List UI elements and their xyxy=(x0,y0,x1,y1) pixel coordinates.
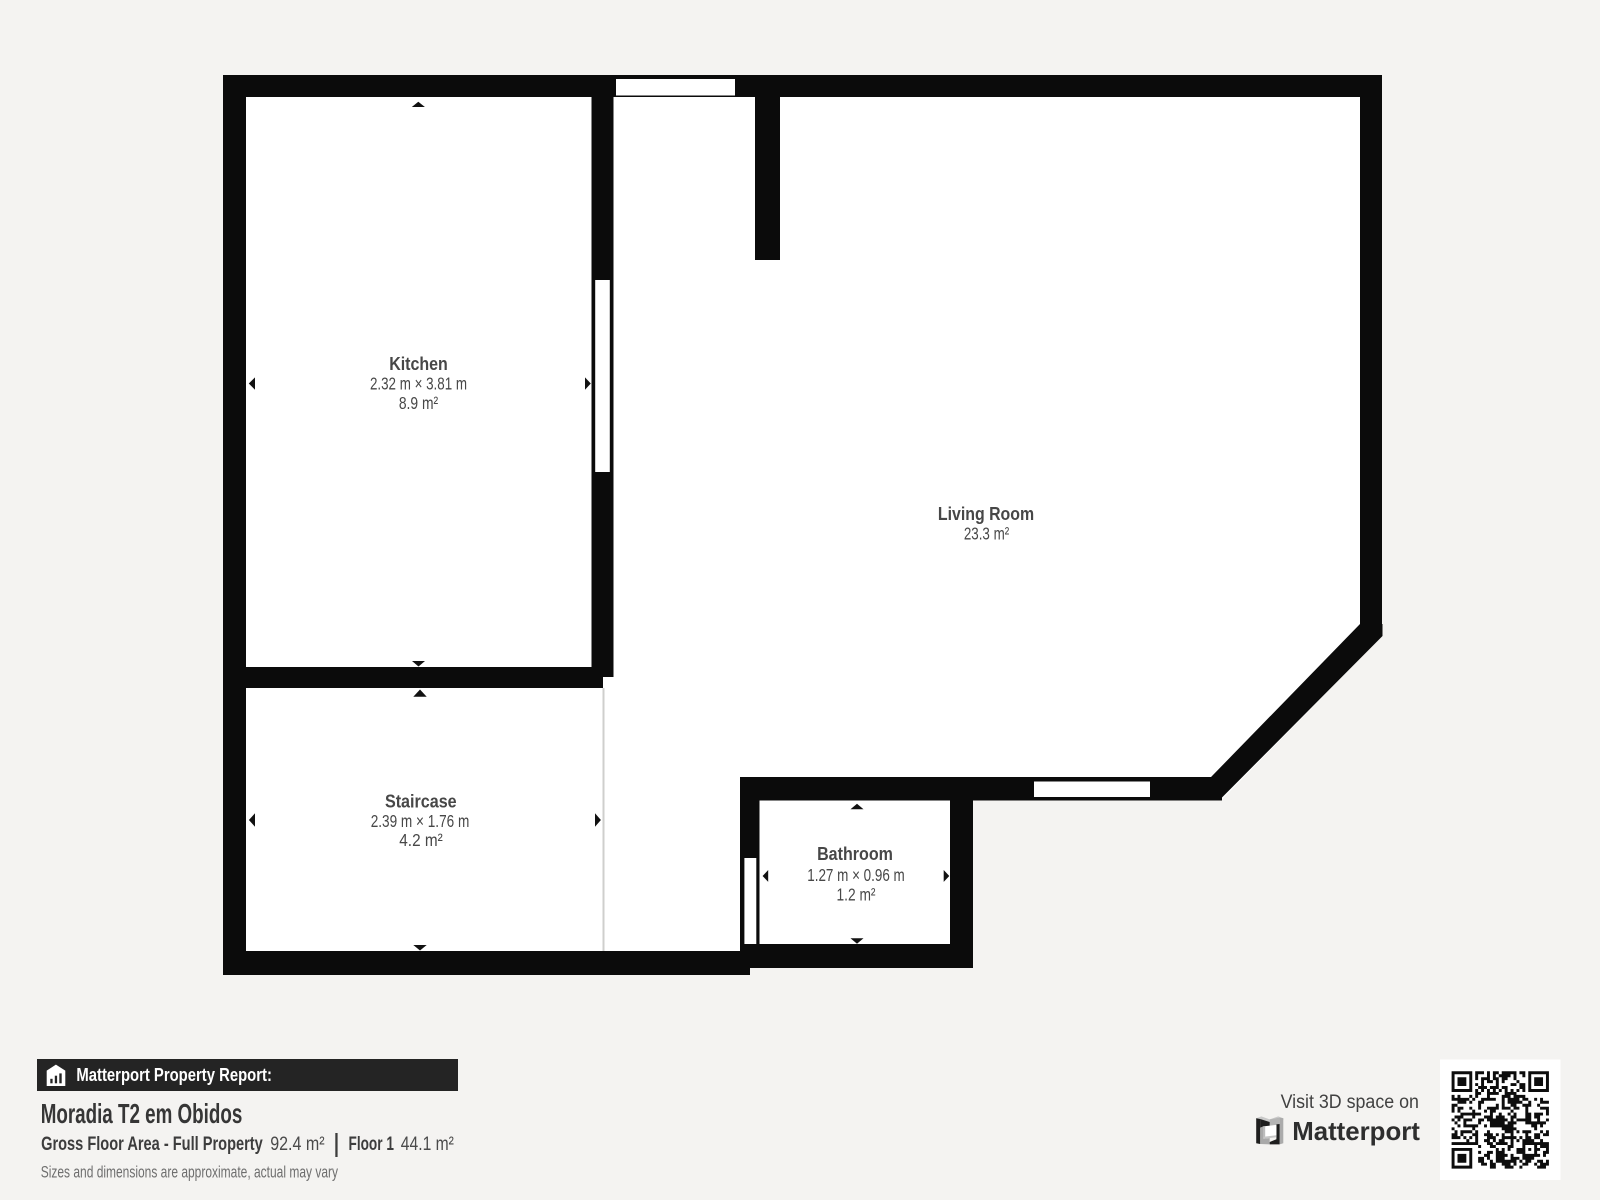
svg-text:1.2 m²: 1.2 m² xyxy=(837,884,876,904)
svg-text:2.39 m × 1.76 m: 2.39 m × 1.76 m xyxy=(371,811,470,831)
svg-text:92.4 m²: 92.4 m² xyxy=(270,1134,324,1155)
svg-text:Sizes and dimensions are appro: Sizes and dimensions are approximate, ac… xyxy=(41,1163,339,1182)
svg-text:Living Room: Living Room xyxy=(938,504,1034,524)
svg-text:Matterport Property Report:: Matterport Property Report: xyxy=(76,1065,272,1085)
svg-text:23.3 m²: 23.3 m² xyxy=(964,523,1009,543)
svg-text:Visit 3D space on: Visit 3D space on xyxy=(1281,1092,1419,1113)
svg-text:1.27 m × 0.96 m: 1.27 m × 0.96 m xyxy=(807,865,905,885)
svg-text:Gross Floor Area - Full Proper: Gross Floor Area - Full Property xyxy=(41,1134,263,1155)
svg-text:Staircase: Staircase xyxy=(385,791,457,811)
svg-text:Matterport: Matterport xyxy=(1292,1116,1420,1146)
svg-text:4.2 m²: 4.2 m² xyxy=(399,830,443,850)
svg-text:8.9 m²: 8.9 m² xyxy=(399,393,438,413)
svg-text:44.1 m²: 44.1 m² xyxy=(401,1134,454,1155)
svg-text:Moradia T2 em Obidos: Moradia T2 em Obidos xyxy=(41,1098,243,1129)
svg-text:2.32 m × 3.81 m: 2.32 m × 3.81 m xyxy=(370,374,467,394)
svg-text:Kitchen: Kitchen xyxy=(389,354,448,374)
svg-text:Bathroom: Bathroom xyxy=(817,844,893,864)
svg-text:Floor 1: Floor 1 xyxy=(349,1134,395,1155)
